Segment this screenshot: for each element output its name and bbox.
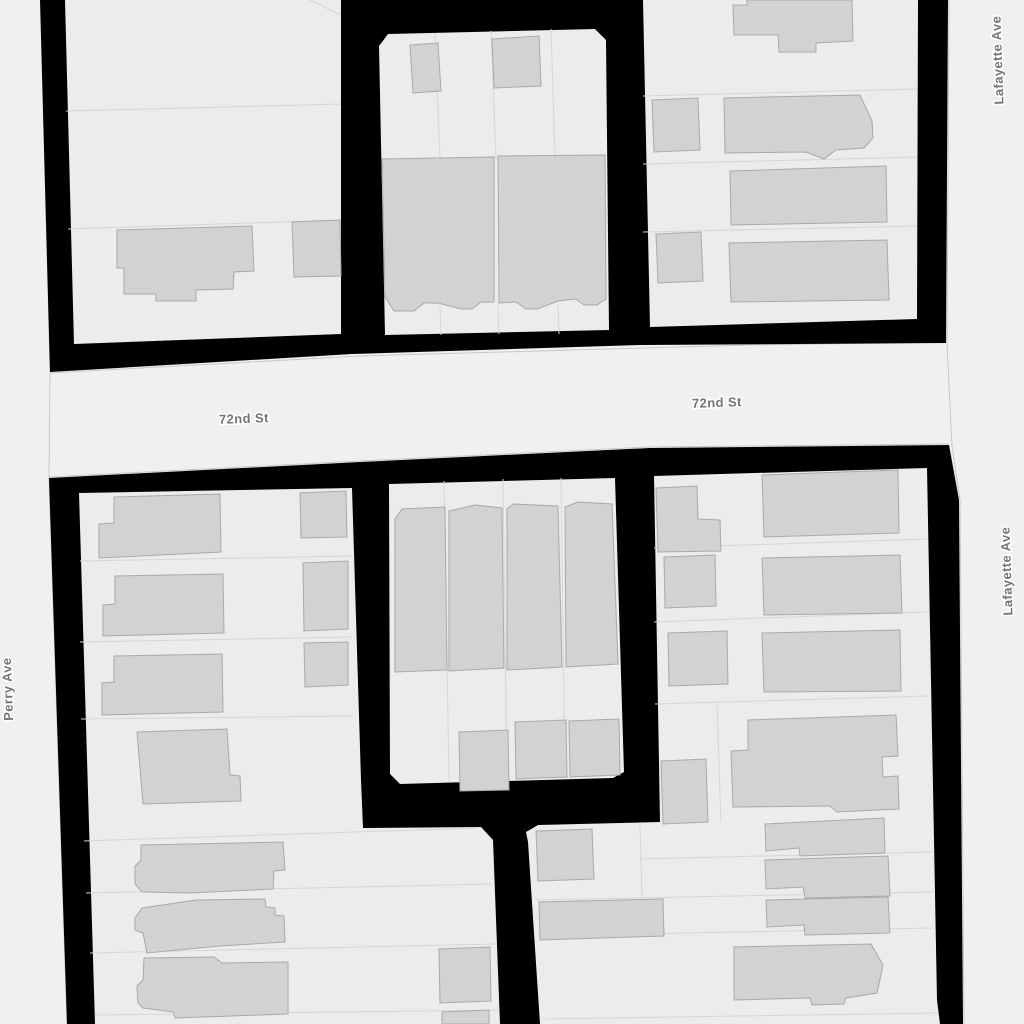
svg-text:Perry Ave: Perry Ave xyxy=(0,657,16,721)
svg-text:Lafayette Ave: Lafayette Ave xyxy=(988,16,1006,105)
svg-text:Lafayette Ave: Lafayette Ave xyxy=(997,527,1015,616)
svg-text:72nd St: 72nd St xyxy=(219,410,270,427)
svg-text:72nd St: 72nd St xyxy=(692,394,743,411)
